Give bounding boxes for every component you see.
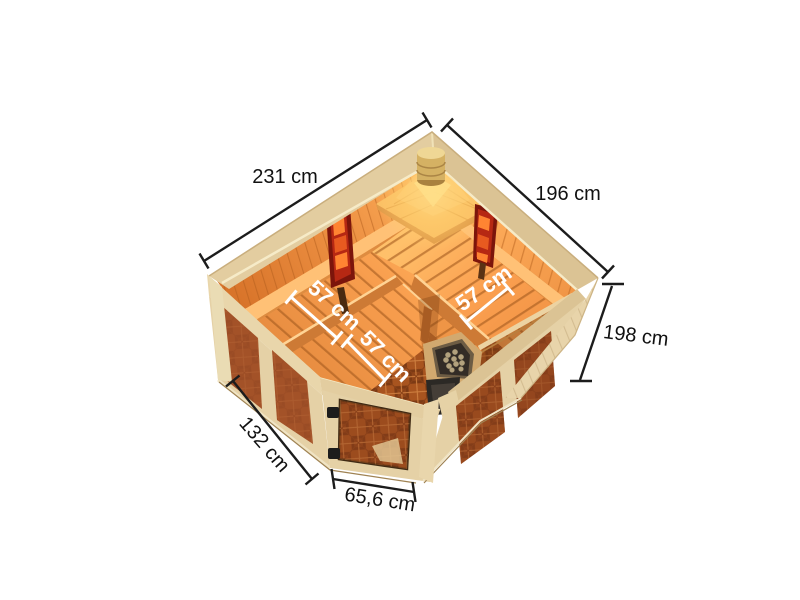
svg-text:196 cm: 196 cm [535,183,601,205]
svg-text:231 cm: 231 cm [252,166,318,188]
